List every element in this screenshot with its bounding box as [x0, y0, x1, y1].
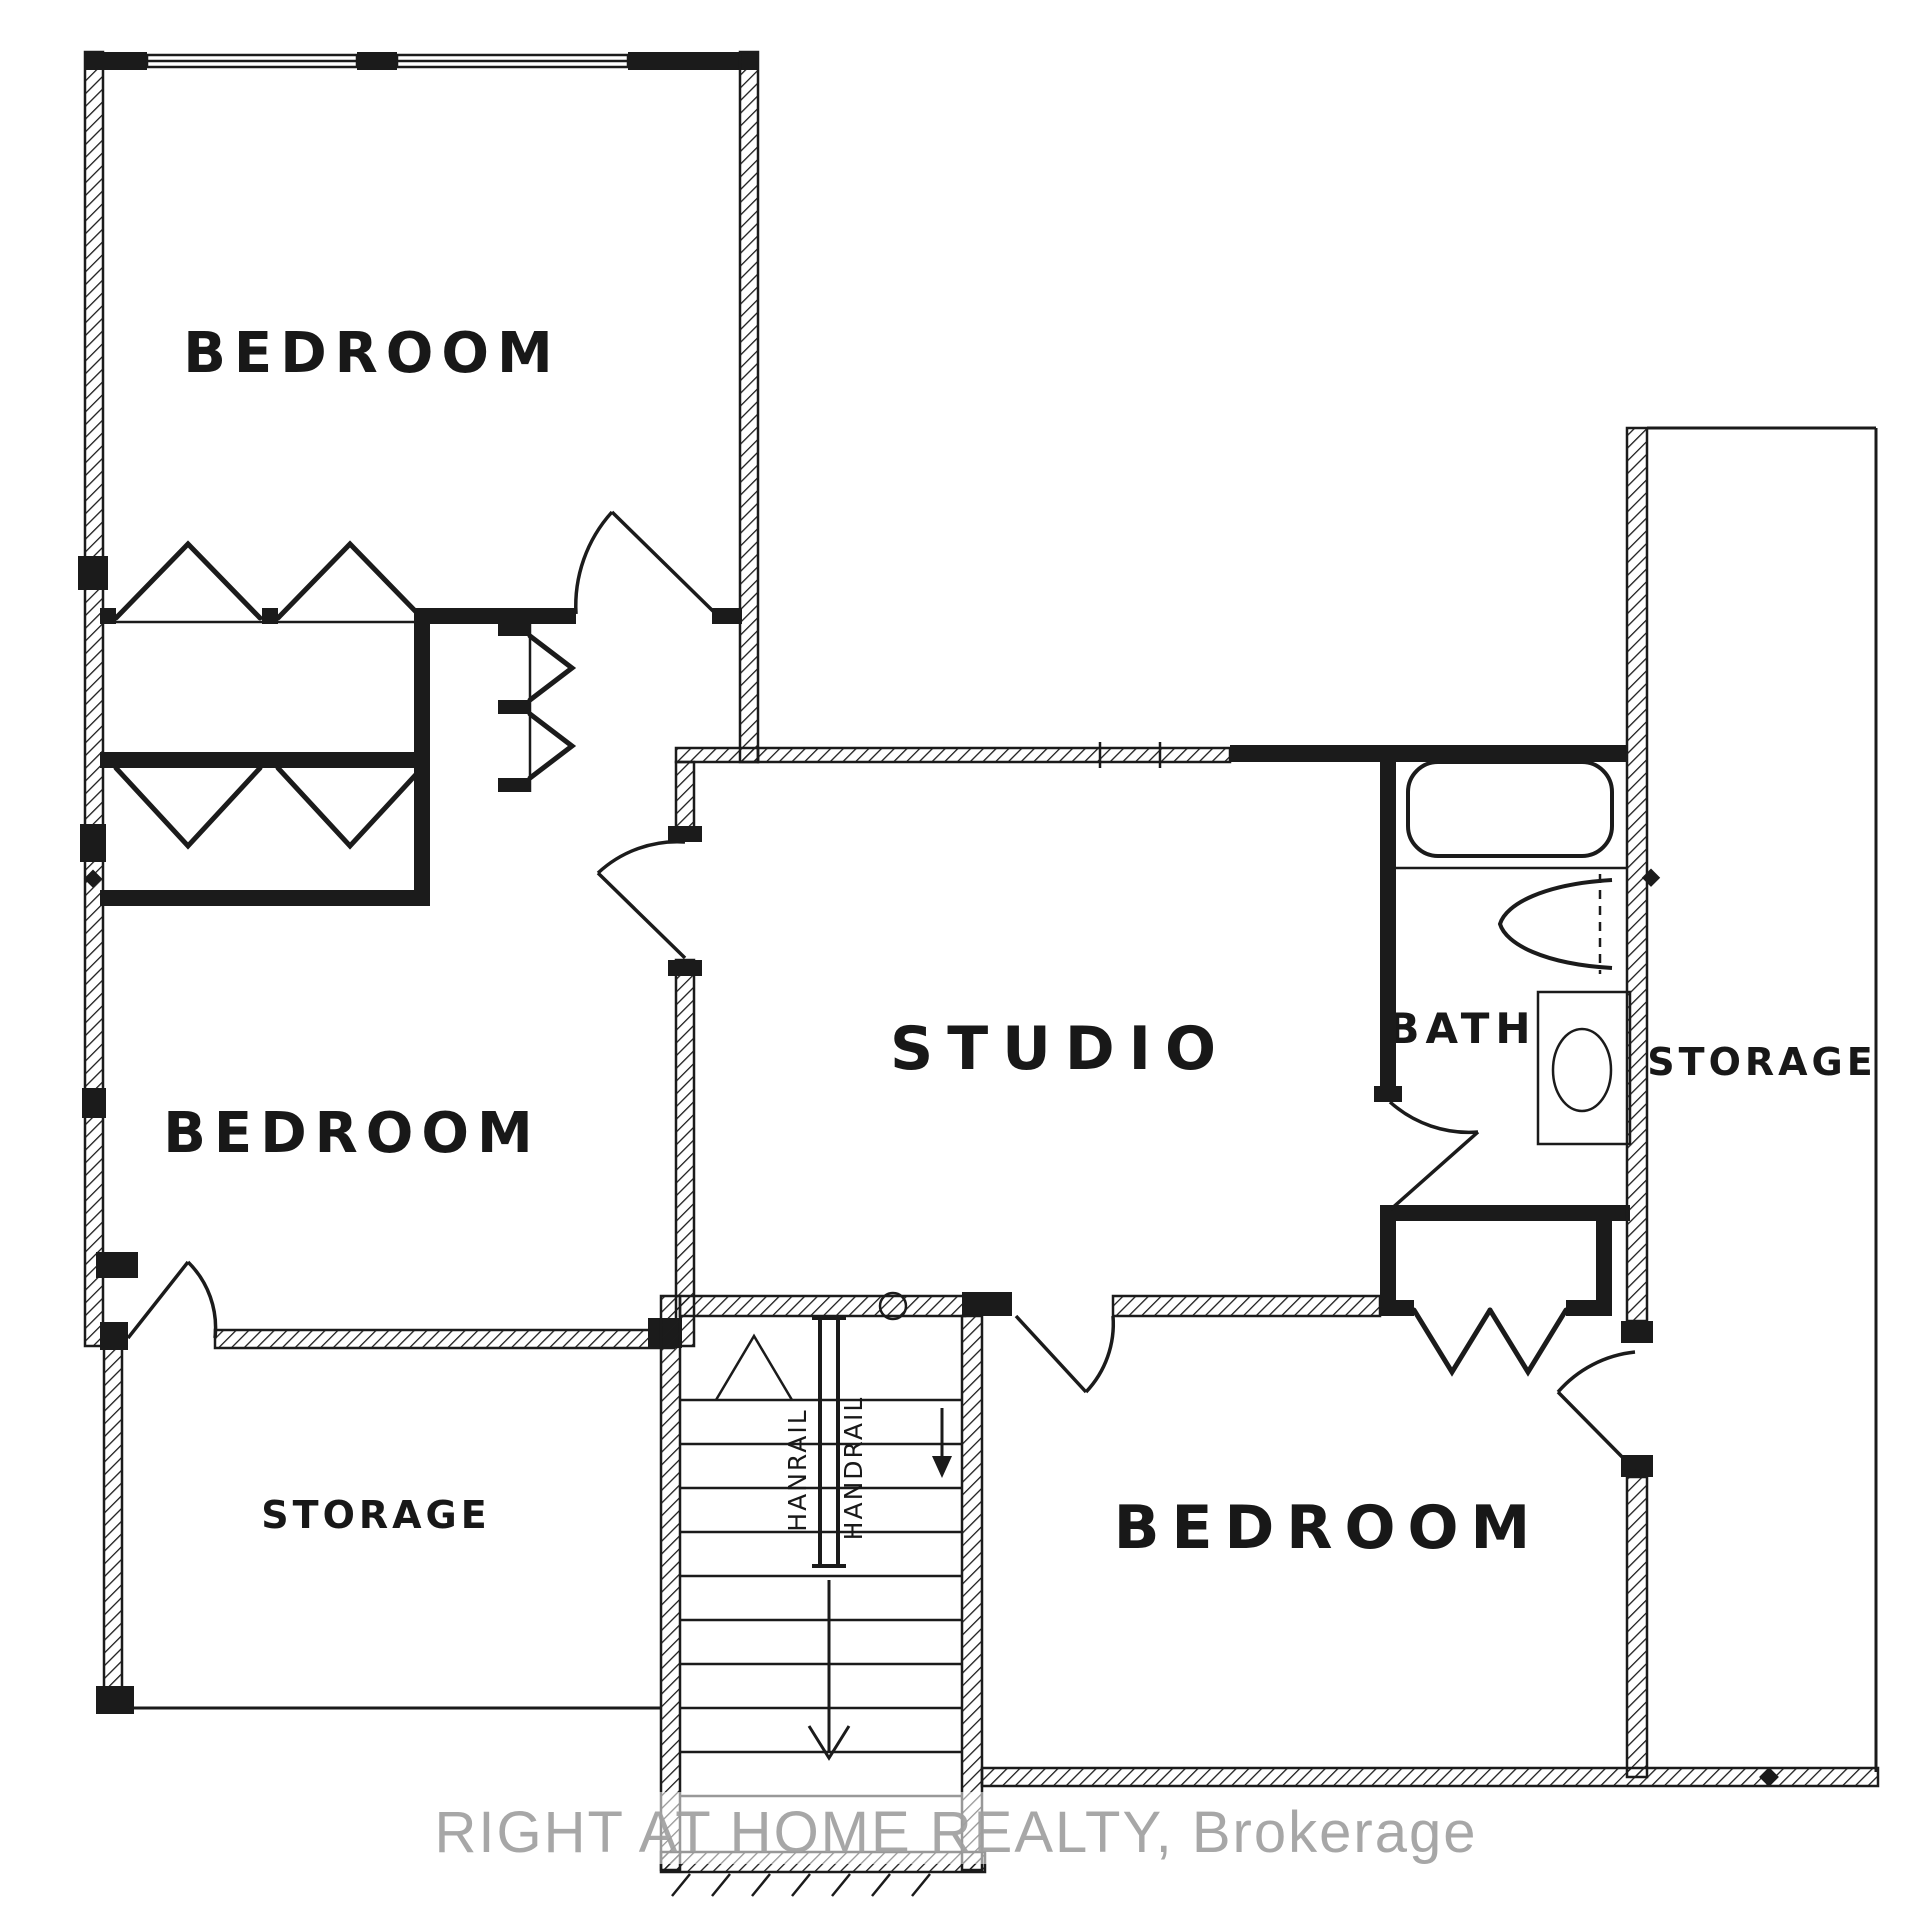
- wall-jog: [676, 748, 758, 762]
- door-swing-icon: [1086, 1316, 1113, 1392]
- storage-east-label: STORAGE: [1647, 1040, 1876, 1084]
- door-jamb: [668, 826, 702, 842]
- bath-west-wall: [1380, 745, 1396, 1100]
- floor-plan-drawing: BEDROOM BEDROOM: [0, 0, 1920, 1914]
- storage-west-wall: [104, 1346, 122, 1708]
- closet-middle-wall: [100, 752, 430, 768]
- bath-label: BATH: [1387, 1004, 1536, 1053]
- handrail-left-label: HANRAIL: [783, 1408, 812, 1531]
- bedroom-3-label: BEDROOM: [1114, 1493, 1542, 1563]
- storage-west-wall-lower: [1627, 1477, 1647, 1777]
- wall-post: [96, 1252, 138, 1278]
- door-leaf: [598, 873, 685, 958]
- bifold-closet-door-icon: [530, 636, 572, 700]
- room-storage-west: STORAGE: [96, 1493, 661, 1714]
- wall-segment: [357, 52, 397, 70]
- handrail-right-label: HANDRAIL: [839, 1396, 868, 1541]
- floor-plan-page: BEDROOM BEDROOM: [0, 0, 1920, 1914]
- door-jamb: [100, 1322, 128, 1350]
- down-arrow-head: [932, 1456, 952, 1478]
- bath-north-wall: [1230, 745, 1627, 762]
- closet-east-wall: [414, 608, 430, 906]
- bifold-closet-door-icon: [1490, 1310, 1566, 1372]
- closet-south-wall: [100, 890, 430, 906]
- door-leaf: [1558, 1392, 1635, 1470]
- wall-segment: [628, 52, 758, 70]
- door-swing-icon: [1390, 1102, 1478, 1132]
- bifold-closet-door-icon: [116, 544, 260, 618]
- bedroom3-north-wall: [1113, 1296, 1380, 1316]
- watermark-text: RIGHT AT HOME REALTY, Brokerage: [435, 1800, 1478, 1865]
- bedroom3-south-wall: [982, 1768, 1878, 1786]
- door-leaf: [1390, 1132, 1478, 1210]
- wall-segment: [712, 608, 742, 624]
- door-jamb: [498, 622, 530, 636]
- closet-side-wall: [1596, 1221, 1612, 1312]
- room-bedroom-3: BEDROOM: [982, 1221, 1878, 1787]
- wall-post: [78, 556, 108, 590]
- bifold-closet-door-icon: [530, 714, 572, 778]
- bifold-closet-door-icon: [278, 544, 422, 618]
- wall-post: [82, 1088, 106, 1118]
- bifold-closet-door-icon: [116, 768, 260, 846]
- toilet-bowl-icon: [1553, 1029, 1611, 1111]
- up-arrow-icon: [716, 1336, 792, 1400]
- closet-block: [100, 544, 430, 906]
- bifold-closet-door-icon: [1414, 1310, 1490, 1372]
- bedroom-2-label: BEDROOM: [163, 1101, 540, 1166]
- bedroom2-south-wall: [215, 1330, 674, 1348]
- sink-icon: [1500, 880, 1612, 968]
- wall-post: [80, 824, 106, 862]
- west-window-wall: [85, 52, 103, 1346]
- studio-south-wall: [680, 1296, 965, 1316]
- room-bedroom-1: BEDROOM: [183, 321, 742, 624]
- hall-closets: [498, 622, 572, 792]
- wall-post: [96, 1686, 134, 1714]
- door-jamb: [498, 700, 530, 714]
- stair-west-wall: [661, 1296, 680, 1870]
- room-storage-east: STORAGE: [1558, 428, 1877, 1777]
- door-leaf: [612, 512, 716, 614]
- wall-post: [962, 1292, 1012, 1316]
- door-swing-icon: [1558, 1352, 1635, 1392]
- wall-segment: [85, 52, 147, 70]
- storage-west-wall: [1627, 428, 1647, 1321]
- door-swing-icon: [188, 1262, 216, 1338]
- door-swing-icon: [576, 512, 612, 614]
- studio-label: STUDIO: [890, 1014, 1230, 1084]
- stair-east-wall: [962, 1316, 982, 1870]
- door-jamb: [1374, 1086, 1402, 1102]
- door-jamb: [668, 960, 702, 976]
- storage-west-label: STORAGE: [261, 1493, 490, 1537]
- door-jamb: [498, 778, 530, 792]
- bedroom1-east-wall: [740, 52, 758, 762]
- room-bath: BATH: [1374, 745, 1630, 1221]
- bedroom-1-label: BEDROOM: [183, 321, 560, 386]
- door-swing-icon: [598, 842, 685, 873]
- wall-segment: [430, 608, 576, 624]
- door-jamb: [1380, 1300, 1414, 1316]
- bathtub-icon: [1408, 762, 1612, 856]
- door-jamb: [262, 608, 278, 624]
- watermark: RIGHT AT HOME REALTY, Brokerage: [435, 1792, 1478, 1865]
- door-leaf: [1016, 1316, 1086, 1392]
- foundation-hatch-ticks: [672, 1874, 930, 1896]
- bath-south-wall: [1380, 1205, 1630, 1221]
- bedroom2-east-wall-lower: [676, 960, 694, 1346]
- closet-side-wall: [1380, 1221, 1396, 1312]
- door-jamb: [1621, 1321, 1653, 1343]
- door-jamb: [100, 608, 116, 624]
- door-jamb: [1566, 1300, 1612, 1316]
- bifold-closet-door-icon: [278, 768, 422, 846]
